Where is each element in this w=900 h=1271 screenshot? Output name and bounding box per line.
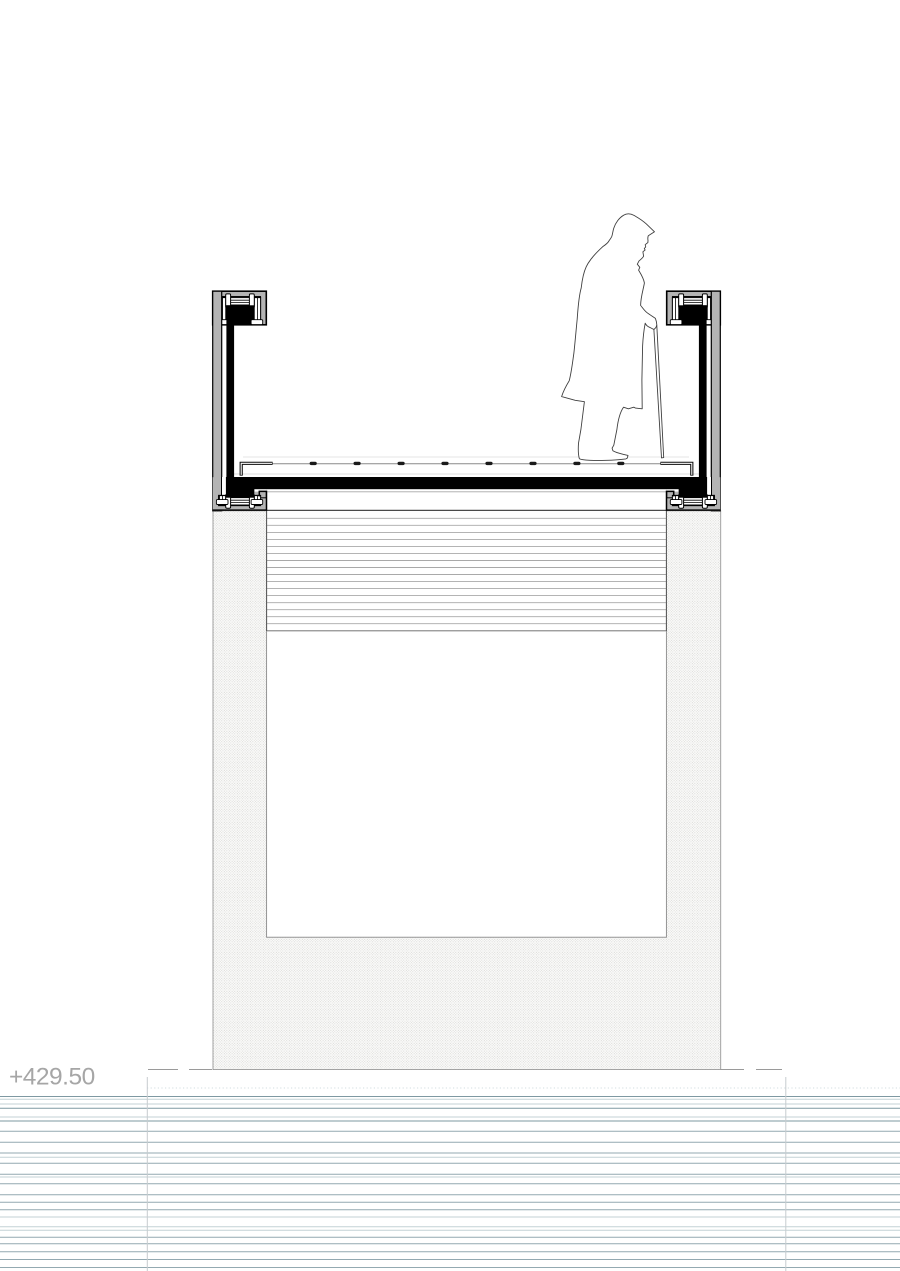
- svg-text:+429.50: +429.50: [9, 1063, 95, 1090]
